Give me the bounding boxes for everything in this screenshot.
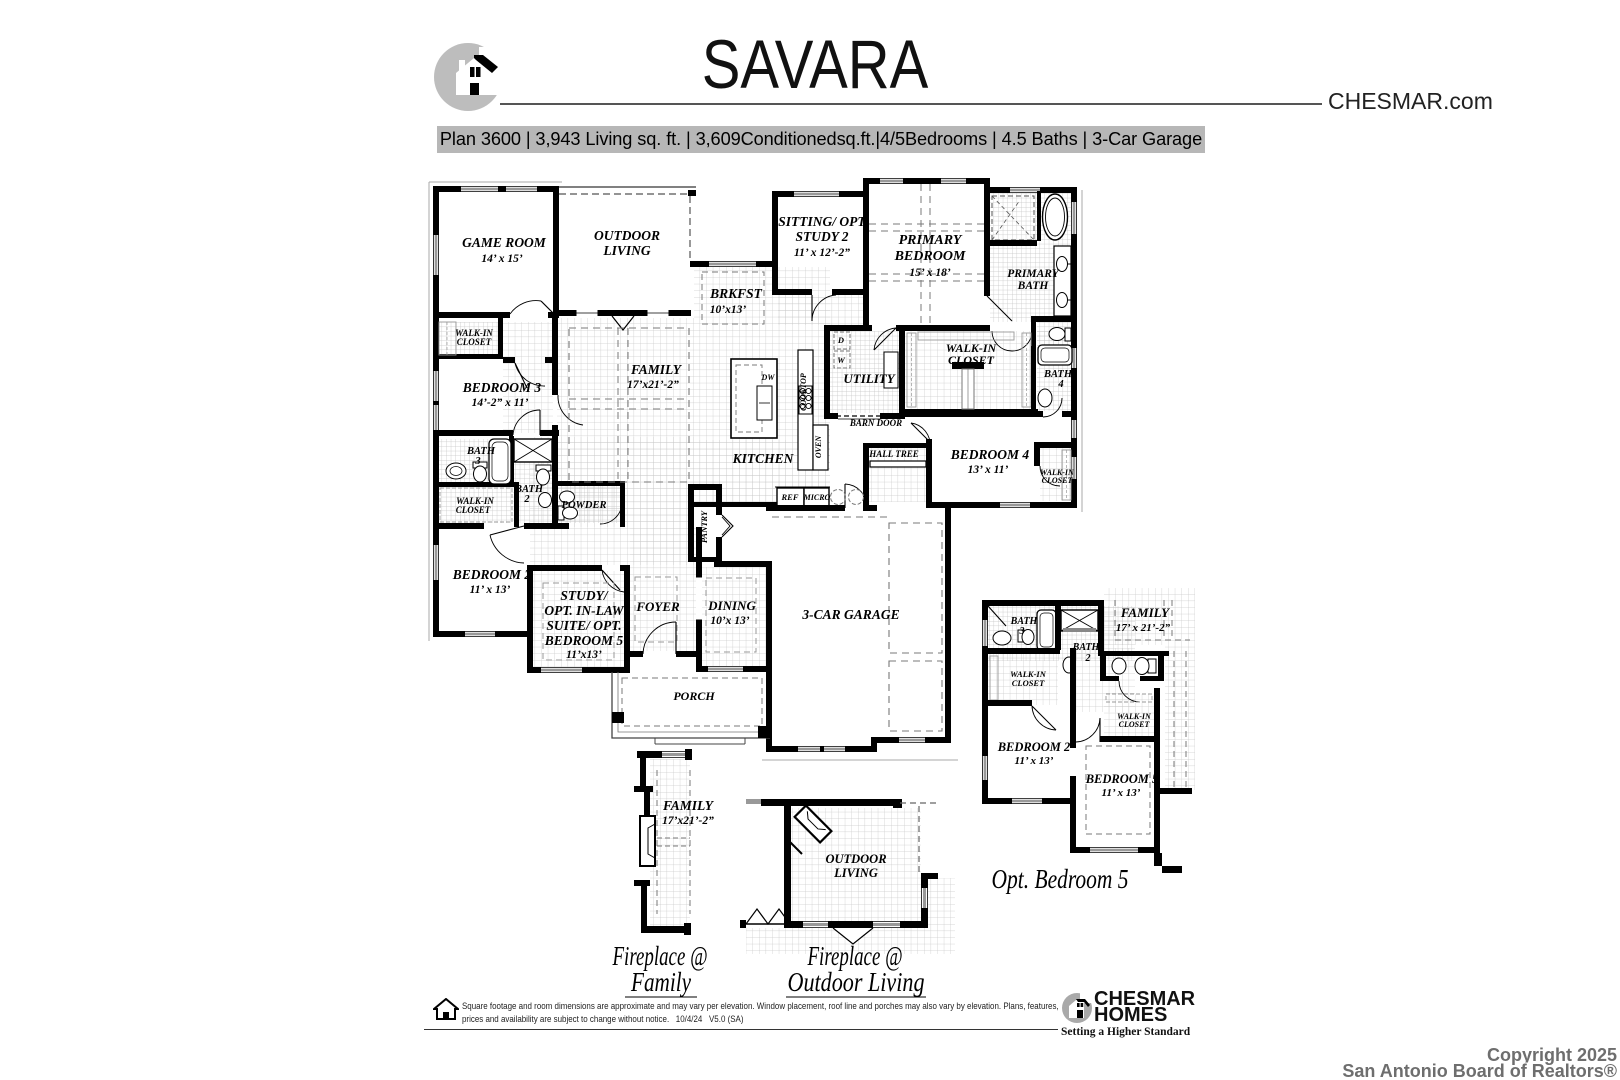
svg-text:COOKTOP: COOKTOP — [799, 373, 808, 411]
svg-text:17’x21’-2”: 17’x21’-2” — [662, 815, 714, 827]
svg-text:FOYER: FOYER — [635, 599, 680, 614]
svg-text:SITTING/ OPT.: SITTING/ OPT. — [778, 214, 868, 229]
svg-text:3: 3 — [1019, 626, 1025, 637]
svg-text:BATH: BATH — [1017, 280, 1050, 292]
svg-text:Family: Family — [630, 967, 691, 997]
svg-text:17’ x 21’-2”: 17’ x 21’-2” — [1116, 622, 1171, 634]
svg-text:OUTDOOR: OUTDOOR — [594, 228, 660, 243]
svg-text:BRKFST: BRKFST — [709, 286, 763, 301]
svg-text:OPT. IN-LAW: OPT. IN-LAW — [544, 603, 624, 618]
svg-text:10’x13’: 10’x13’ — [710, 304, 747, 316]
svg-text:17’x21’-2”: 17’x21’-2” — [627, 379, 679, 391]
svg-text:D: D — [837, 335, 844, 345]
svg-text:STUDY/: STUDY/ — [560, 588, 608, 603]
svg-text:UTILITY: UTILITY — [843, 371, 895, 386]
svg-text:11’x13’: 11’x13’ — [566, 649, 602, 661]
svg-text:2: 2 — [1085, 653, 1091, 664]
svg-text:CLOSET: CLOSET — [457, 337, 492, 347]
svg-text:MICRO: MICRO — [803, 493, 831, 502]
svg-text:BEDROOM 4: BEDROOM 4 — [950, 447, 1030, 462]
svg-text:BEDROOM 2: BEDROOM 2 — [452, 567, 532, 582]
svg-text:BEDROOM: BEDROOM — [894, 249, 966, 264]
svg-text:11’ x 12’-2”: 11’ x 12’-2” — [794, 247, 850, 259]
svg-text:OVEN: OVEN — [814, 435, 823, 458]
svg-text:GAME ROOM: GAME ROOM — [462, 235, 547, 250]
svg-text:10’x 13’: 10’x 13’ — [710, 615, 749, 627]
svg-text:Outdoor Living: Outdoor Living — [788, 967, 925, 997]
svg-text:2: 2 — [523, 494, 530, 505]
svg-text:CLOSET: CLOSET — [456, 505, 491, 515]
svg-text:BEDROOM 5: BEDROOM 5 — [1085, 772, 1159, 786]
svg-text:14’-2” x 11’: 14’-2” x 11’ — [472, 397, 529, 409]
svg-text:14’ x 15’: 14’ x 15’ — [481, 253, 522, 265]
svg-text:POWDER: POWDER — [562, 500, 607, 511]
svg-text:3: 3 — [474, 456, 480, 467]
svg-text:REF: REF — [780, 492, 798, 502]
svg-text:PORCH: PORCH — [673, 689, 715, 703]
svg-text:BATH: BATH — [466, 446, 496, 457]
svg-text:DW: DW — [761, 373, 776, 382]
svg-text:BEDROOM 3: BEDROOM 3 — [462, 380, 542, 395]
svg-text:PANTRY: PANTRY — [699, 510, 709, 543]
svg-text:Opt. Bedroom 5: Opt. Bedroom 5 — [992, 864, 1129, 894]
svg-text:CLOSET: CLOSET — [1119, 720, 1151, 729]
svg-text:FAMILY: FAMILY — [630, 362, 683, 377]
svg-text:FAMILY: FAMILY — [662, 798, 715, 813]
svg-text:11’ x 13’: 11’ x 13’ — [470, 584, 511, 596]
svg-text:11’ x 13’: 11’ x 13’ — [1015, 755, 1054, 767]
svg-text:KITCHEN: KITCHEN — [732, 451, 795, 466]
svg-text:LIVING: LIVING — [602, 243, 651, 258]
svg-text:BEDROOM 5: BEDROOM 5 — [544, 633, 624, 648]
svg-text:LIVING: LIVING — [833, 866, 878, 880]
svg-text:11’ x 13’: 11’ x 13’ — [1102, 787, 1141, 799]
svg-text:PRIMARY: PRIMARY — [899, 233, 963, 248]
svg-text:BEDROOM 2: BEDROOM 2 — [997, 740, 1071, 754]
svg-text:4: 4 — [1057, 379, 1063, 390]
svg-text:SUITE/ OPT.: SUITE/ OPT. — [546, 618, 621, 633]
svg-text:BARN DOOR: BARN DOOR — [849, 418, 902, 428]
svg-text:OUTDOOR: OUTDOOR — [825, 852, 886, 866]
svg-text:FAMILY: FAMILY — [1120, 605, 1170, 620]
svg-text:15’ x 18’: 15’ x 18’ — [909, 267, 950, 279]
svg-text:PRIMARY: PRIMARY — [1007, 268, 1060, 280]
svg-text:HALL TREE: HALL TREE — [868, 449, 918, 459]
svg-text:CLOSET: CLOSET — [1042, 476, 1074, 485]
svg-text:3-CAR GARAGE: 3-CAR GARAGE — [801, 607, 899, 622]
svg-text:CLOSET: CLOSET — [948, 353, 995, 367]
svg-text:STUDY 2: STUDY 2 — [795, 229, 848, 244]
svg-text:13’ x 11’: 13’ x 11’ — [968, 464, 1009, 476]
svg-text:CLOSET: CLOSET — [1012, 678, 1045, 688]
svg-text:BATH: BATH — [1072, 642, 1101, 653]
svg-text:DINING: DINING — [707, 598, 756, 613]
